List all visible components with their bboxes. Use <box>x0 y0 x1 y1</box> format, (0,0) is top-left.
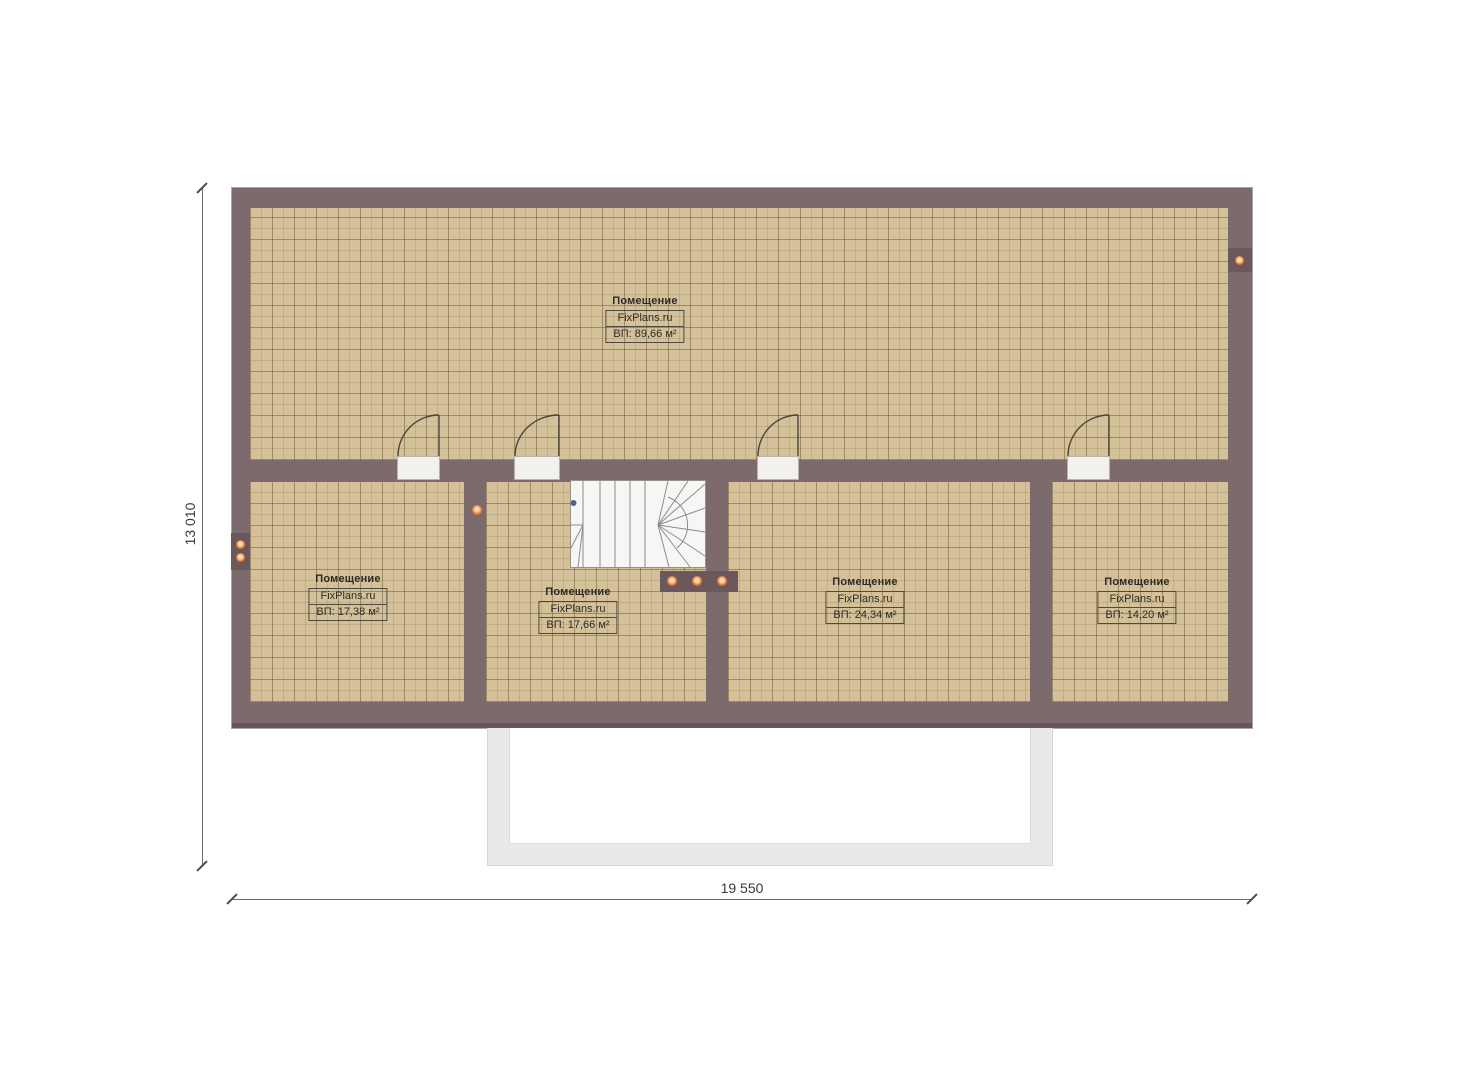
door-sill-1 <box>397 456 440 480</box>
dimension-line-vertical <box>202 188 203 866</box>
spotlight-dot-icon <box>717 576 727 586</box>
porch-terrace <box>487 728 1053 866</box>
spotlight-dot-icon <box>667 576 677 586</box>
room-label-top: Помещение FixPlans.ru ВП: 89,66 м² <box>605 295 684 343</box>
room-info-box: FixPlans.ru ВП: 14,20 м² <box>1097 591 1176 624</box>
room-info-box: FixPlans.ru ВП: 17,66 м² <box>538 601 617 634</box>
spotlight-dot-icon <box>472 505 482 515</box>
room-label-bottom-4: Помещение FixPlans.ru ВП: 14,20 м² <box>1097 576 1176 624</box>
door-sill-3 <box>757 456 799 480</box>
spotlight-panel-left-wall <box>231 533 250 570</box>
room-brand: FixPlans.ru <box>309 589 386 604</box>
room-brand: FixPlans.ru <box>1098 592 1175 607</box>
room-name: Помещение <box>308 573 387 586</box>
spotlight-panel-stairs <box>660 571 738 592</box>
floor-plan-building: Помещение FixPlans.ru ВП: 89,66 м² Помещ… <box>232 188 1252 728</box>
door-swing-icon <box>1067 413 1110 457</box>
door-sill-2 <box>514 456 560 480</box>
room-area: ВП: 14,20 м² <box>1098 607 1175 623</box>
room-brand: FixPlans.ru <box>539 602 616 617</box>
spotlight-dot-icon <box>692 576 702 586</box>
dimension-line-horizontal <box>232 899 1252 900</box>
door-sill-4 <box>1067 456 1110 480</box>
room-brand: FixPlans.ru <box>826 592 903 607</box>
room-area: ВП: 89,66 м² <box>606 326 683 342</box>
door-swing-icon <box>757 413 799 457</box>
room-info-box: FixPlans.ru ВП: 17,38 м² <box>308 588 387 621</box>
room-name: Помещение <box>538 586 617 599</box>
room-name: Помещение <box>605 295 684 308</box>
handrail-post-icon <box>571 500 577 506</box>
spotlight-dot-icon <box>1235 256 1244 265</box>
room-label-bottom-2: Помещение FixPlans.ru ВП: 17,66 м² <box>538 586 617 634</box>
spotlight-dot-icon <box>236 553 245 562</box>
porch-interior <box>509 728 1031 844</box>
room-area: ВП: 17,66 м² <box>539 617 616 633</box>
room-name: Помещение <box>825 576 904 589</box>
door-swing-icon <box>397 413 440 457</box>
door-swing-icon <box>514 413 560 457</box>
dimension-height-label: 13 010 <box>182 492 198 556</box>
spotlight-dot-icon <box>236 540 245 549</box>
room-info-box: FixPlans.ru ВП: 89,66 м² <box>605 310 684 343</box>
room-area: ВП: 17,38 м² <box>309 604 386 620</box>
room-name: Помещение <box>1097 576 1176 589</box>
room-label-bottom-1: Помещение FixPlans.ru ВП: 17,38 м² <box>308 573 387 621</box>
spotlight-panel-right-wall <box>1228 248 1252 272</box>
room-brand: FixPlans.ru <box>606 311 683 326</box>
room-area: ВП: 24,34 м² <box>826 607 903 623</box>
dimension-width-label: 19 550 <box>692 880 792 896</box>
room-label-bottom-3: Помещение FixPlans.ru ВП: 24,34 м² <box>825 576 904 624</box>
room-info-box: FixPlans.ru ВП: 24,34 м² <box>825 591 904 624</box>
staircase <box>570 480 706 568</box>
